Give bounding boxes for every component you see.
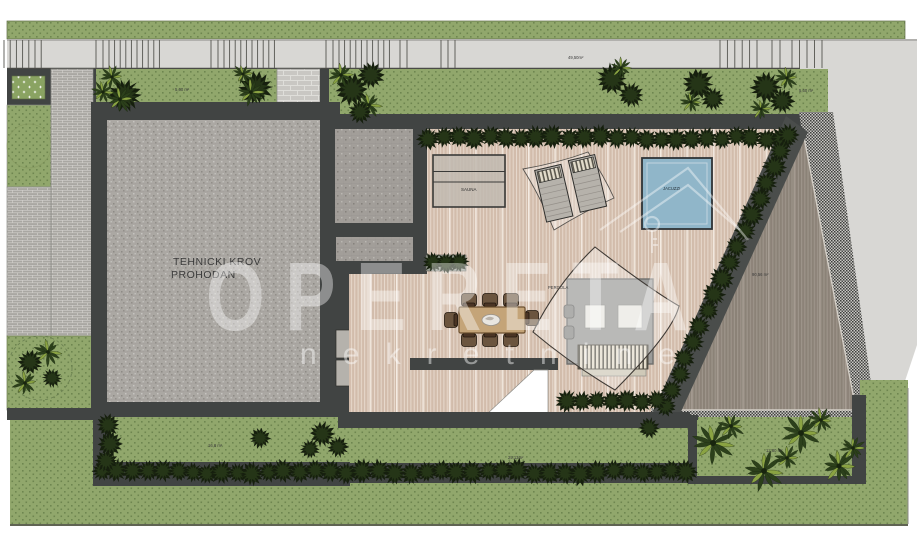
svg-text:5,60 m²: 5,60 m² [799,88,814,93]
svg-text:49,50m²: 49,50m² [568,55,584,60]
svg-text:16,8 m²: 16,8 m² [208,443,223,448]
svg-text:29,13m²: 29,13m² [508,455,524,460]
svg-text:5,60 m²: 5,60 m² [175,87,190,92]
svg-text:90,56 m²: 90,56 m² [752,272,769,277]
svg-text:12,80 m²: 12,80 m² [766,448,783,453]
svg-text:JACUZZI: JACUZZI [663,186,680,191]
svg-text:SAUNA: SAUNA [461,187,477,192]
